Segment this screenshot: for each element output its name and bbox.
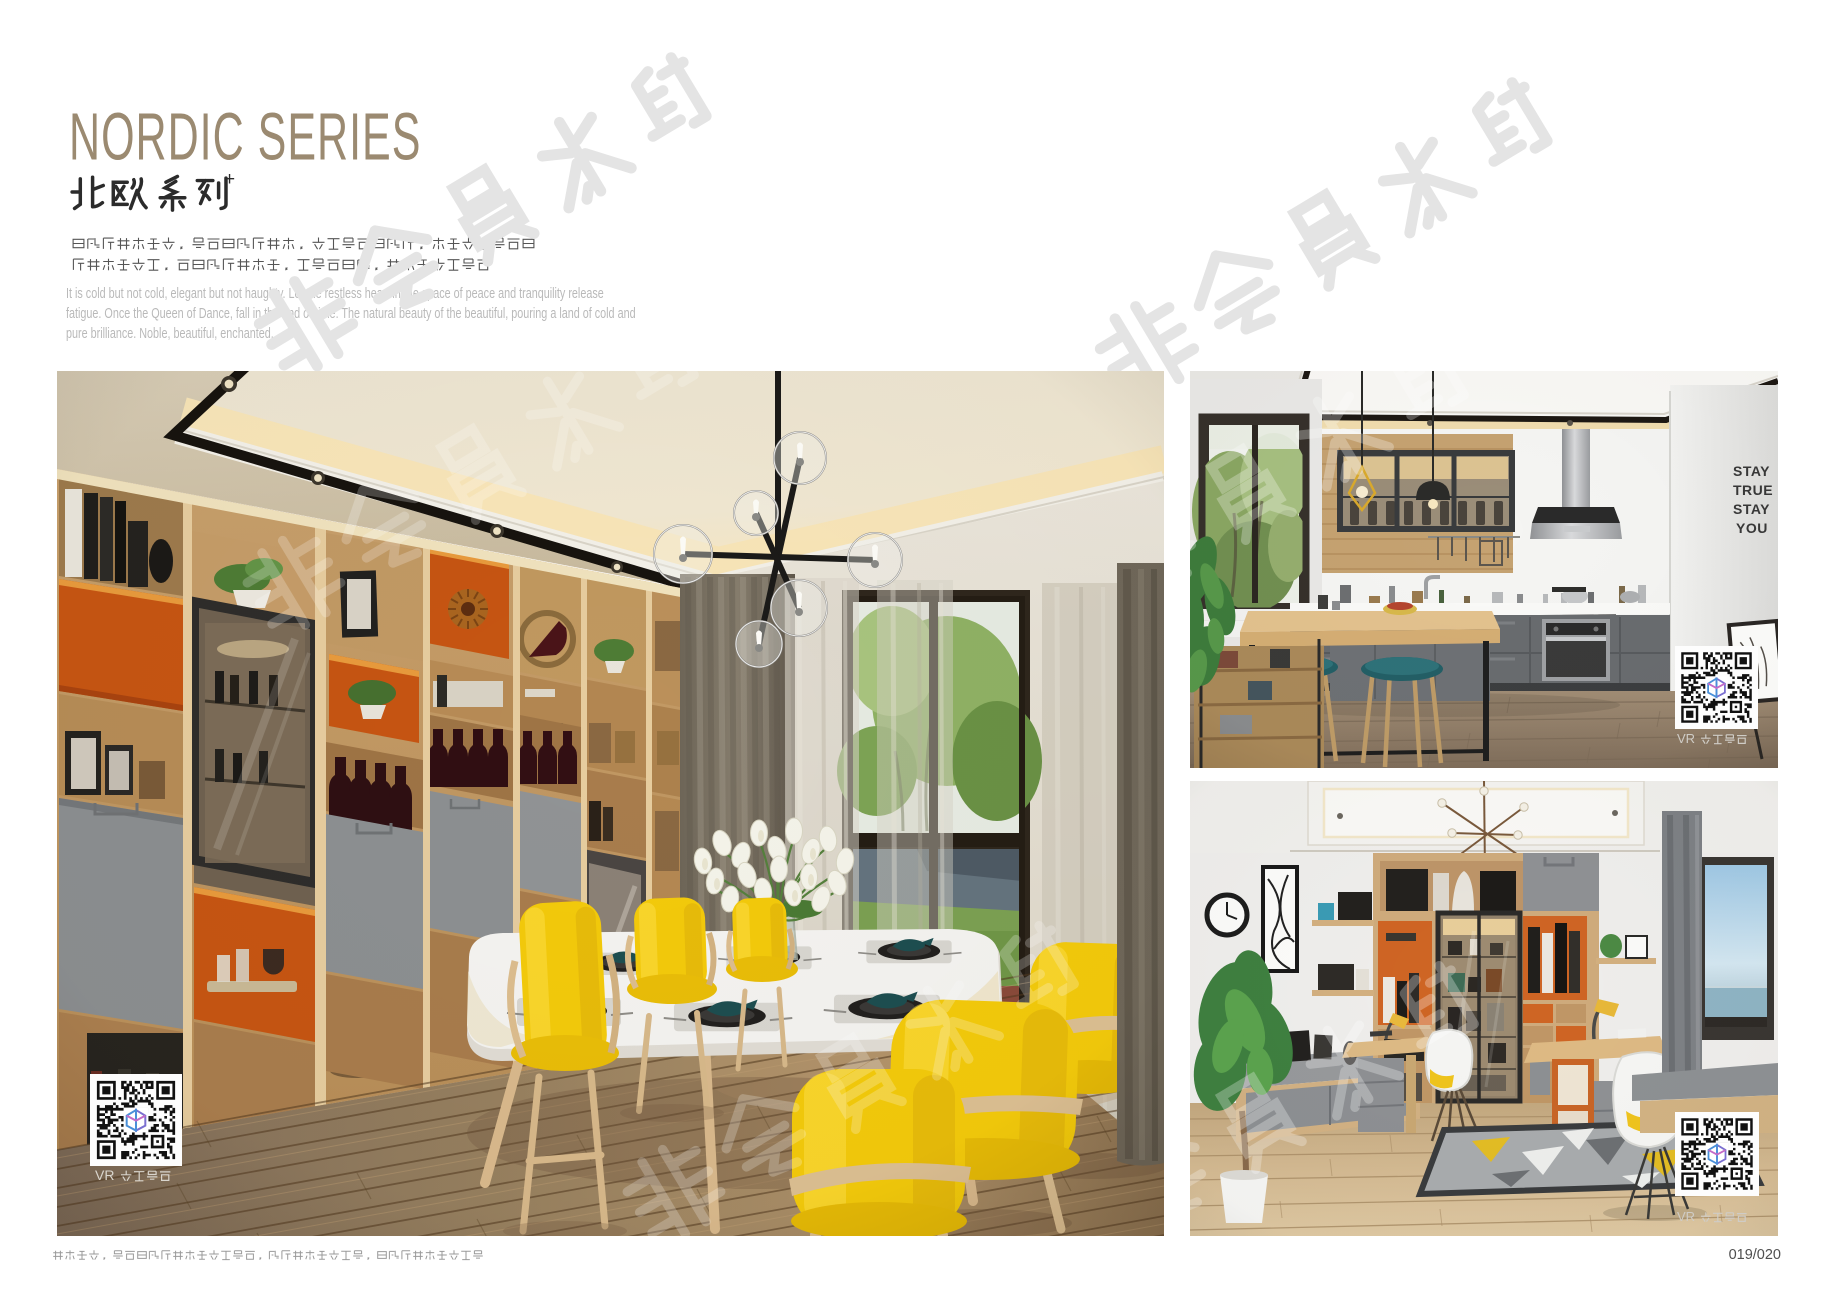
svg-text:VR: VR (1677, 731, 1695, 746)
svg-text:VR: VR (95, 1167, 114, 1183)
svg-text:VR: VR (1677, 1209, 1695, 1224)
